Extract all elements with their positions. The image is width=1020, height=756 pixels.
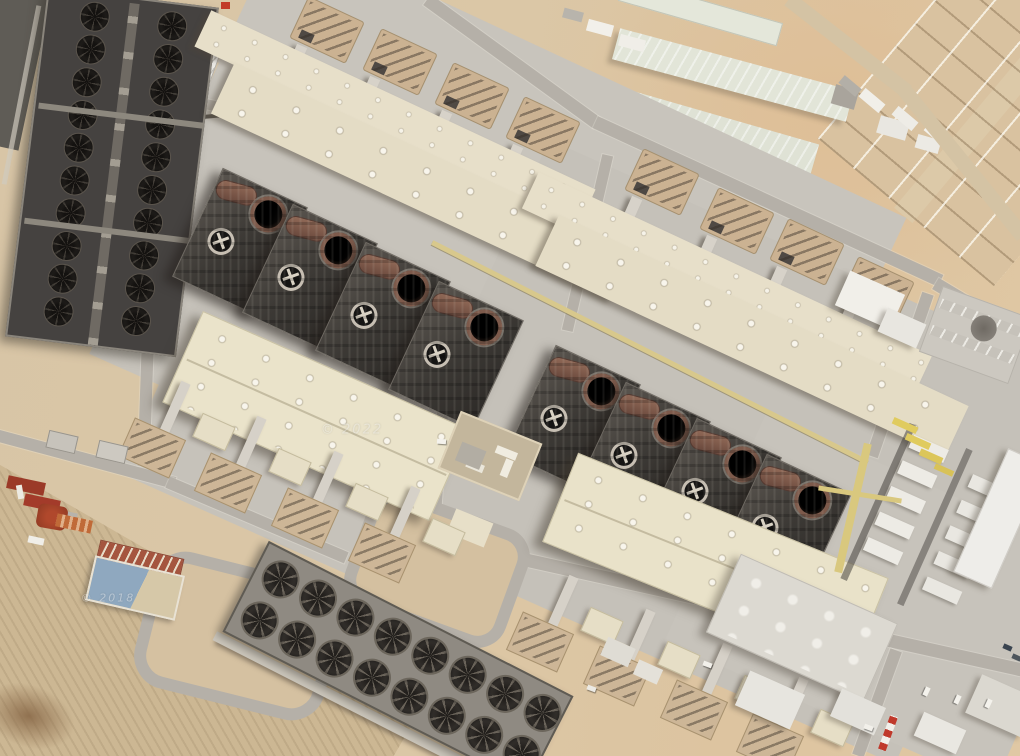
- car-white-road: [436, 438, 445, 444]
- cooling-fan: [127, 239, 160, 272]
- cooling-fan: [74, 33, 107, 66]
- transformer-bay: [862, 537, 902, 565]
- transformer: [371, 61, 387, 75]
- bypass-stack: [273, 259, 309, 295]
- transformer: [443, 95, 459, 109]
- transformer-bay: [921, 576, 961, 604]
- transformer-bay: [897, 460, 937, 488]
- cooling-fan: [155, 10, 188, 43]
- red-object: [221, 2, 230, 9]
- satellite-image: © 2022© 2018: [0, 0, 1020, 756]
- cooling-fan: [123, 272, 156, 305]
- cooling-fan: [119, 304, 152, 337]
- cooling-fan: [58, 164, 91, 197]
- cooling-fan: [151, 42, 184, 75]
- cooling-fan: [50, 229, 83, 262]
- cooling-fan: [147, 75, 180, 108]
- compound-bldg-2: [500, 458, 514, 478]
- bypass-stack: [419, 336, 455, 372]
- transformer: [514, 129, 530, 143]
- cooling-fan: [496, 728, 547, 756]
- cooling-fan: [62, 131, 95, 164]
- cooling-fan: [78, 0, 111, 33]
- watermark: © 2022: [321, 423, 383, 438]
- bypass-stack: [536, 400, 572, 436]
- cooling-fan: [135, 173, 168, 206]
- transformer: [778, 251, 794, 265]
- cooling-fan: [70, 66, 103, 99]
- transformer: [708, 220, 724, 234]
- cooling-fan: [139, 141, 172, 174]
- cooling-fan: [42, 295, 75, 328]
- bypass-stack: [203, 223, 239, 259]
- transformer: [633, 181, 649, 195]
- cooling-fan: [46, 262, 79, 295]
- transformer-bay: [874, 511, 914, 539]
- transformer: [298, 29, 314, 43]
- watermark: © 2018: [81, 592, 136, 605]
- bypass-stack: [346, 297, 382, 333]
